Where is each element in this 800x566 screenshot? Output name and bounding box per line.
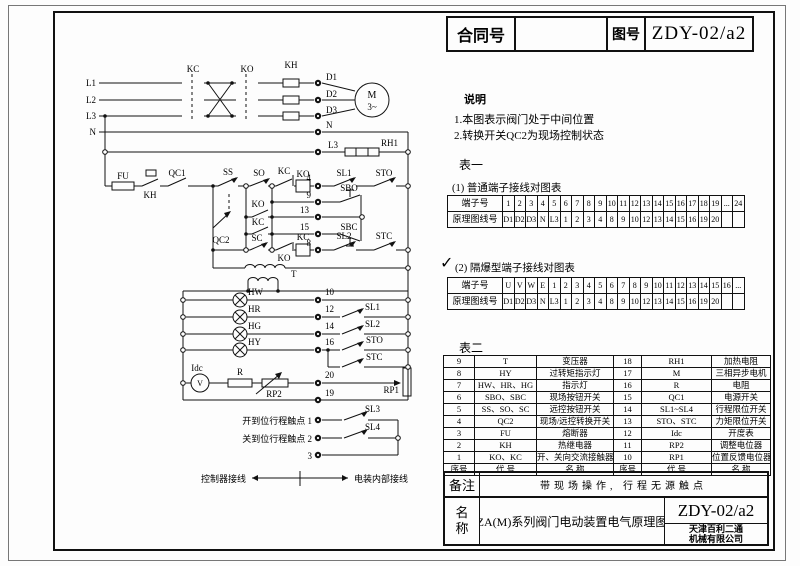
table-cell: 力矩限位开关 (711, 415, 770, 427)
table-cell: N (537, 211, 549, 227)
table-cell: RH1 (641, 356, 711, 367)
company-line: 机械有限公司 (689, 534, 743, 544)
table-cell: M (641, 367, 711, 379)
table-cell: 12 (629, 196, 641, 211)
component-row: 4QC2现场/远控转换开关13STO、STC力矩限位开关 (444, 415, 770, 427)
row-label: 端子号 (448, 278, 502, 293)
kh-heater-2 (283, 96, 299, 104)
label-l3: L3 (86, 111, 96, 121)
table-cell: 12 (640, 293, 652, 309)
drawing-no-bottom: ZDY-02/a2 (665, 498, 767, 524)
table-cell: 6 (444, 391, 474, 403)
component-row: 9T变压器18RH1加热电阻 (444, 356, 770, 367)
label-open-limit: 开到位行程触点 1 (242, 415, 312, 426)
table-cell: 1 (444, 451, 474, 463)
label-stc-ctrl: STC (376, 231, 393, 241)
table-cell: 16 (686, 293, 698, 309)
table-cell: R (641, 379, 711, 391)
terminals (315, 80, 321, 458)
table-cell: 远控按钮开关 (536, 403, 613, 415)
terminal-number-row: 端子号UVWE12345678910111213141516... (448, 278, 744, 293)
table-cell: 4 (537, 196, 549, 211)
label-wire-15: 15 (300, 222, 310, 232)
notes-heading: 说明 (464, 92, 604, 108)
table-cell: 11 (613, 439, 641, 451)
table-cell: RP1 (641, 451, 711, 463)
label-sl1-ctrl: SL1 (336, 168, 351, 178)
table-cell: 行程限位开关 (711, 403, 770, 415)
name-label-char: 称 (455, 521, 468, 537)
table-cell: 2 (571, 211, 583, 227)
component-row: 5SS、SO、SC远控按钮开关14SL1~SL4行程限位开关 (444, 403, 770, 415)
table-cell: 过转矩指示灯 (536, 367, 613, 379)
table-cell: 8 (444, 367, 474, 379)
heater-rh1-symbol (345, 148, 379, 156)
label-l3-terminal: L3 (328, 140, 338, 150)
name-block-right: ZDY-02/a2 天津百利二通 机械有限公司 (665, 498, 767, 544)
label-motor: M (368, 90, 377, 101)
label-wire-19: 19 (325, 388, 335, 398)
remark-label: 备注 (445, 473, 480, 496)
notes-section: 说明 1.本图表示阀门处于中间位置 2.转换开关QC2为现场控制状态 (454, 92, 604, 144)
label-rp2: RP2 (266, 389, 282, 399)
table-cell: 9 (640, 278, 652, 293)
circuit-schematic: L1 L2 L3 N KC KO KH D1 D2 D3 M 3~ N L3 R… (50, 52, 430, 522)
label-hr: HR (248, 304, 261, 314)
label-motor-phase: 3~ (367, 102, 377, 112)
label-wire-4: 4 (307, 173, 312, 183)
table-cell: 14 (663, 211, 675, 227)
table-cell: 调整电位器 (711, 439, 770, 451)
table-cell: 3 (525, 196, 537, 211)
table-cell: 8 (583, 196, 595, 211)
kh-heater-1 (283, 79, 299, 87)
table-cell: 三相异步电机 (711, 367, 770, 379)
table-cell: 加热电阻 (711, 356, 770, 367)
table-cell: 9 (617, 211, 629, 227)
company-name: 天津百利二通 机械有限公司 (665, 524, 767, 544)
table-cell: 6 (560, 196, 572, 211)
table-cell: 17 (613, 367, 641, 379)
table-cell: 2 (560, 278, 572, 293)
table-cell: 5 (548, 196, 560, 211)
name-block: 名 称 ZA(M)系列阀门电动装置电气原理图 ZDY-02/a2 天津百利二通 … (443, 496, 769, 546)
table-cell: 1 (548, 278, 560, 293)
label-sl4: SL4 (365, 422, 381, 432)
label-legend-left: 控制器接线 (201, 473, 246, 484)
table-cell: KO、KC (474, 451, 536, 463)
label-ss: SS (223, 167, 233, 177)
label-sto-lamp: STO (366, 335, 383, 345)
label-sl2-ctrl: SL2 (336, 231, 351, 241)
label-wire-9: 9 (307, 190, 312, 200)
label-wire-20: 20 (325, 370, 335, 380)
label-legend-right: 电装内部接线 (354, 473, 408, 484)
check-mark: ✓ (440, 257, 453, 271)
label-so: SO (253, 168, 265, 178)
terminal-table-explosion-proof: 端子号UVWE12345678910111213141516... 原理图线号D… (447, 277, 745, 310)
label-wire-16: 16 (325, 337, 335, 347)
table-cell: 4 (583, 278, 595, 293)
table-cell: L3 (548, 211, 560, 227)
table-cell: 7 (571, 196, 583, 211)
table-cell: 电源开关 (711, 391, 770, 403)
table-cell: 19 (709, 196, 721, 211)
table-cell (721, 211, 733, 227)
label-sc: SC (251, 233, 262, 243)
table-cell (732, 211, 744, 227)
component-table: 9T变压器18RH1加热电阻 8HY过转矩指示灯17M三相异步电机 7HW、HR… (443, 355, 771, 476)
label-hw: HW (248, 287, 263, 297)
label-sbo: SBO (340, 183, 358, 193)
row-label: 端子号 (448, 196, 502, 211)
table1-heading: 表一 (459, 156, 483, 173)
table-cell: 15 (675, 211, 687, 227)
kh-heater-3 (283, 112, 299, 120)
fuse-symbol (112, 182, 134, 190)
table-cell: D3 (525, 211, 537, 227)
drawing-title: ZA(M)系列阀门电动装置电气原理图 (480, 498, 665, 544)
label-hg: HG (248, 321, 261, 331)
table-cell: 1 (560, 211, 572, 227)
table-cell: 3 (583, 211, 595, 227)
table-cell: T (474, 356, 536, 367)
table-cell: 5 (594, 278, 606, 293)
component-row: 7HW、HR、HG指示灯16R电阻 (444, 379, 770, 391)
resistor-r-symbol (228, 379, 252, 387)
table-cell: 1 (502, 196, 514, 211)
table-cell: 20 (709, 293, 721, 309)
component-row: 3FU熔断器12Idc开度表 (444, 427, 770, 439)
table-cell: 16 (613, 379, 641, 391)
table-cell: 电阻 (711, 379, 770, 391)
label-rh1: RH1 (381, 138, 398, 148)
remark-text: 带现场操作, 行程无源触点 (480, 473, 767, 496)
table-cell: 18 (613, 356, 641, 367)
note-line: 2.转换开关QC2为现场控制状态 (454, 128, 604, 144)
table-cell: 14 (698, 278, 710, 293)
label-kc: KC (187, 64, 200, 74)
table-cell: 8 (606, 293, 618, 309)
label-n-terminal: N (326, 120, 333, 130)
label-sl2-lamp: SL2 (365, 319, 380, 329)
table-cell: 17 (686, 196, 698, 211)
component-row: 8HY过转矩指示灯17M三相异步电机 (444, 367, 770, 379)
table-cell: 7 (617, 278, 629, 293)
note-line: 1.本图表示阀门处于中间位置 (454, 112, 604, 128)
label-kc-nc: KC (278, 166, 291, 176)
component-row: 2KH热继电器11RP2调整电位器 (444, 439, 770, 451)
label-kh-contact: KH (144, 190, 157, 200)
table-cell: 15 (663, 196, 675, 211)
label-hy: HY (248, 337, 261, 347)
label-d3: D3 (326, 105, 337, 115)
table-cell: 15 (675, 293, 687, 309)
component-row: 6SBO、SBC现场按钮开关15QC1电源开关 (444, 391, 770, 403)
table-cell: 11 (663, 278, 675, 293)
table-cell: 16 (686, 211, 698, 227)
label-voltmeter: V (197, 379, 203, 388)
table-cell: 9 (444, 356, 474, 367)
table-cell: 2 (514, 196, 526, 211)
drawing-no-label: 图号 (606, 16, 646, 52)
table-cell: 4 (594, 211, 606, 227)
component-table-heading: 表二 (459, 339, 483, 356)
table-cell: HW、HR、HG (474, 379, 536, 391)
label-sl1-lamp: SL1 (365, 302, 380, 312)
table-cell: SS、SO、SC (474, 403, 536, 415)
table-cell: 24 (732, 196, 744, 211)
table-cell: Idc (641, 427, 711, 439)
label-qc1: QC1 (168, 168, 185, 178)
label-qc2: QC2 (212, 235, 229, 245)
table-cell: 8 (629, 278, 641, 293)
label-wire-8: 8 (307, 238, 312, 248)
table-cell: 3 (583, 293, 595, 309)
label-rp1: RP1 (383, 385, 399, 395)
table-cell: 开度表 (711, 427, 770, 439)
table-cell: 7 (444, 379, 474, 391)
table-cell: 10 (629, 293, 641, 309)
table-cell: 9 (617, 293, 629, 309)
table-cell: ... (732, 278, 744, 293)
table-cell: D1 (502, 211, 514, 227)
table-cell: 13 (652, 211, 664, 227)
contract-no-value (514, 16, 608, 52)
component-row: 1KO、KC开、关向交流接触器10RP1位置反馈电位器 (444, 451, 770, 463)
table-cell: STO、STC (641, 415, 711, 427)
title-block-top: 合同号 图号 ZDY-02/a2 (446, 16, 754, 52)
table-cell: 9 (594, 196, 606, 211)
name-label-char: 名 (455, 505, 468, 521)
table-cell: 4 (444, 415, 474, 427)
table-cell: 15 (613, 391, 641, 403)
table-cell: 12 (675, 278, 687, 293)
terminal-table-ordinary: 端子号12345678910111213141516171819...24 原理… (447, 195, 745, 228)
label-ko-aux: KO (252, 199, 265, 209)
table-cell: RP2 (641, 439, 711, 451)
table-cell: 13 (640, 196, 652, 211)
drawing-sheet: L1 L2 L3 N KC KO KH D1 D2 D3 M 3~ N L3 R… (0, 0, 800, 566)
table-cell: QC1 (641, 391, 711, 403)
table-cell: KH (474, 439, 536, 451)
table-cell: 20 (709, 211, 721, 227)
table-cell: 16 (721, 278, 733, 293)
label-kc-aux: KC (252, 217, 265, 227)
table-cell: 15 (709, 278, 721, 293)
table-cell: ... (721, 196, 733, 211)
table-cell: 现场/远控转换开关 (536, 415, 613, 427)
label-n: N (90, 127, 97, 137)
label-kh: KH (285, 60, 298, 70)
table-cell: 1 (560, 293, 572, 309)
row-label: 原理图线号 (448, 211, 502, 227)
label-wire-3: 3 (308, 451, 313, 461)
table-cell: 18 (698, 196, 710, 211)
table-cell: D1 (502, 293, 514, 309)
table-cell (721, 293, 733, 309)
label-idc: Idc (191, 363, 203, 373)
table-cell: 8 (606, 211, 618, 227)
table-cell: U (502, 278, 514, 293)
table-cell: 10 (629, 211, 641, 227)
table-cell: 现场按钮开关 (536, 391, 613, 403)
label-d2: D2 (326, 89, 337, 99)
table-cell: E (537, 278, 549, 293)
table-cell: 19 (698, 211, 710, 227)
table-cell: 13 (686, 278, 698, 293)
label-sl3: SL3 (365, 404, 381, 414)
label-l1: L1 (86, 78, 96, 88)
label-ko-nc: KO (278, 253, 291, 263)
table-cell: HY (474, 367, 536, 379)
table-cell: 11 (617, 196, 629, 211)
label-ko: KO (241, 64, 254, 74)
table-cell: V (514, 278, 526, 293)
potentiometer-rp1-symbol (403, 368, 411, 396)
table-cell: 12 (613, 427, 641, 439)
label-sto-ctrl: STO (376, 168, 393, 178)
table-cell: 19 (698, 293, 710, 309)
wire-number-row: 原理图线号D1D2D3NL31234891012131415161920 (448, 293, 744, 309)
label-wire-10: 10 (325, 287, 335, 297)
table-cell: 14 (663, 293, 675, 309)
table-cell: 12 (640, 211, 652, 227)
table-cell: W (525, 278, 537, 293)
table-cell: 热继电器 (536, 439, 613, 451)
label-wire-12: 12 (325, 304, 334, 314)
table-cell: 13 (613, 415, 641, 427)
label-transformer: T (291, 269, 297, 279)
dashed-links (192, 74, 246, 209)
table-cell: 5 (444, 403, 474, 415)
terminal-number-row: 端子号12345678910111213141516171819...24 (448, 196, 744, 211)
label-stc-lamp: STC (366, 352, 383, 362)
label-close-limit: 关到位行程触点 2 (242, 433, 312, 444)
table-cell: 2 (444, 439, 474, 451)
label-d1: D1 (326, 72, 337, 82)
table-cell (732, 293, 744, 309)
table-cell: 13 (652, 293, 664, 309)
table-cell: 14 (652, 196, 664, 211)
table-cell: SBO、SBC (474, 391, 536, 403)
thermal-relay-symbol (146, 170, 156, 176)
label-wire-13: 13 (300, 205, 310, 215)
table1-caption: (1) 普通端子接线对图表 (452, 180, 561, 195)
table-cell: D2 (514, 211, 526, 227)
drawing-no-value: ZDY-02/a2 (644, 16, 754, 52)
wire-number-row: 原理图线号D1D2D3NL31234891012131415161920 (448, 211, 744, 227)
label-fu: FU (117, 171, 129, 181)
table-cell: 变压器 (536, 356, 613, 367)
table-cell: 4 (594, 293, 606, 309)
name-label: 名 称 (445, 498, 480, 544)
table-cell: D3 (525, 293, 537, 309)
table-cell: 14 (613, 403, 641, 415)
label-r: R (237, 367, 243, 377)
row-label: 原理图线号 (448, 293, 502, 309)
table-cell: N (537, 293, 549, 309)
table-cell: 10 (606, 196, 618, 211)
contract-no-label: 合同号 (446, 16, 516, 52)
table-cell: 位置反馈电位器 (711, 451, 770, 463)
table-cell: FU (474, 427, 536, 439)
table-cell: 指示灯 (536, 379, 613, 391)
table-cell: D2 (514, 293, 526, 309)
table-cell: 6 (606, 278, 618, 293)
table-cell: L3 (548, 293, 560, 309)
remark-block: 备注 带现场操作, 行程无源触点 (443, 471, 769, 498)
table-cell: 16 (675, 196, 687, 211)
table-cell: SL1~SL4 (641, 403, 711, 415)
table2-caption: (2) 隔爆型端子接线对图表 (455, 260, 575, 275)
table-cell: 开、关向交流接触器 (536, 451, 613, 463)
table-cell: 2 (571, 293, 583, 309)
company-line: 天津百利二通 (689, 524, 743, 534)
table-cell: 10 (652, 278, 664, 293)
schematic-labels: L1 L2 L3 N KC KO KH D1 D2 D3 M 3~ N L3 R… (86, 60, 408, 484)
table-cell: 熔断器 (536, 427, 613, 439)
label-l2: L2 (86, 95, 96, 105)
table-cell: 3 (571, 278, 583, 293)
label-wire-14: 14 (325, 321, 335, 331)
table-cell: 10 (613, 451, 641, 463)
table-cell: 3 (444, 427, 474, 439)
table-cell: QC2 (474, 415, 536, 427)
